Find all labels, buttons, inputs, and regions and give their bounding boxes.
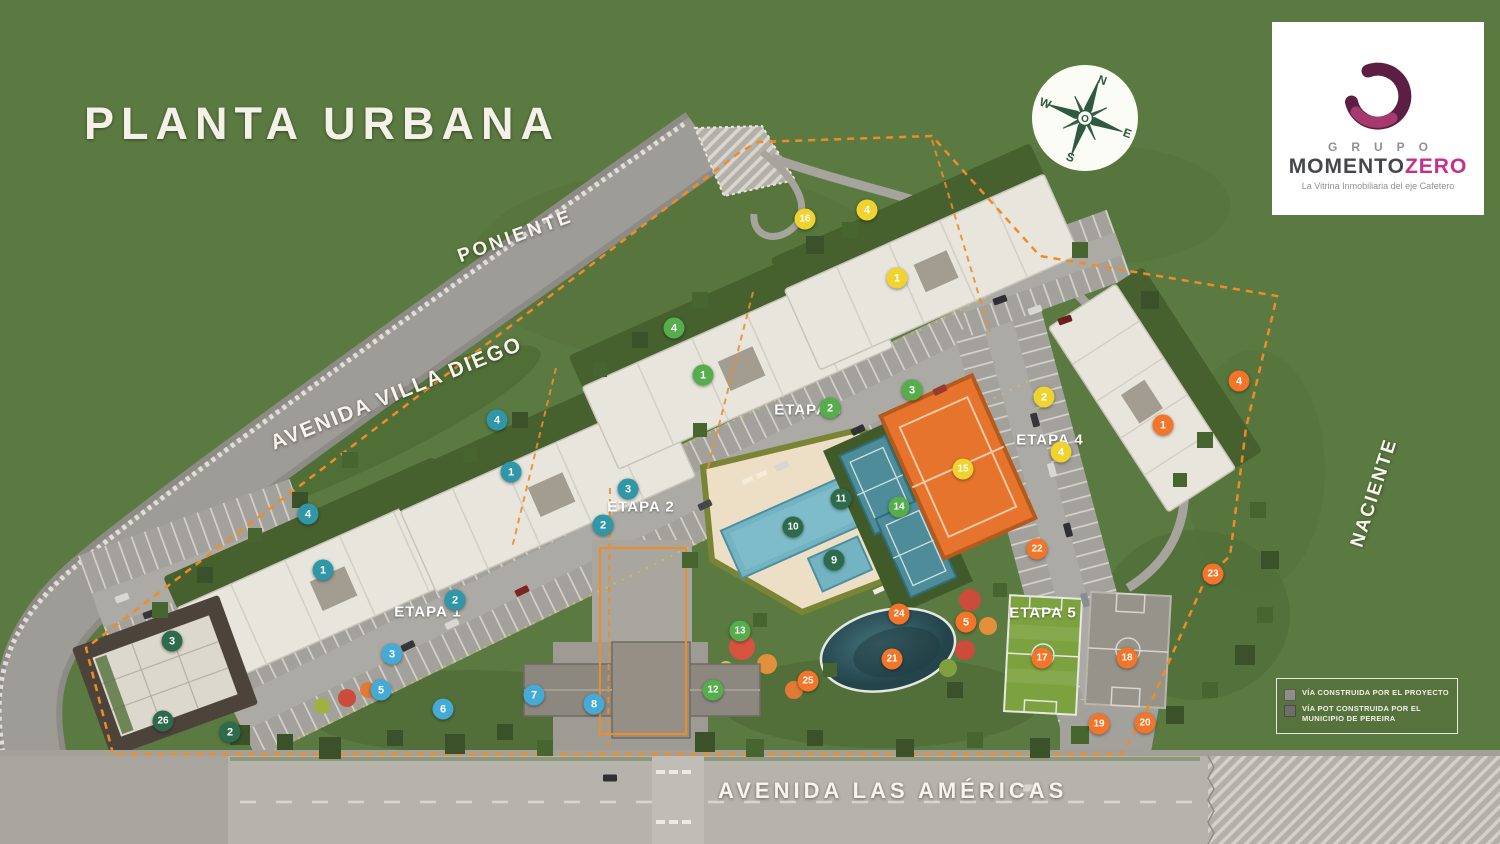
marker-8: 8 [584,694,605,715]
marker-12: 12 [703,680,724,701]
marker-2: 2 [593,515,614,536]
marker-2: 2 [445,590,466,611]
marker-4: 4 [664,318,685,339]
road-legend: VÍA CONSTRUIDA POR EL PROYECTOVÍA POT CO… [1276,678,1458,734]
marker-5: 5 [956,612,977,633]
legend-label: VÍA POT CONSTRUIDA POR EL MUNICIPIO DE P… [1302,704,1450,724]
marker-9: 9 [824,550,845,571]
marker-3: 3 [618,479,639,500]
marker-1: 1 [313,560,334,581]
marker-4: 4 [487,410,508,431]
marker-1: 1 [693,365,714,386]
marker-21: 21 [882,649,903,670]
etapa-label-4: ETAPA 4 [1016,432,1084,449]
legend-swatch [1284,705,1296,717]
etapa-label-5: ETAPA 5 [1009,605,1077,622]
legend-swatch [1284,689,1296,701]
street-label-americas: AVENIDA LAS AMÉRICAS [718,778,1067,804]
marker-2: 2 [1034,387,1055,408]
marker-1: 1 [1153,415,1174,436]
compass-center: O [1081,114,1089,125]
marker-19: 19 [1089,714,1110,735]
legend-label: VÍA CONSTRUIDA POR EL PROYECTO [1302,688,1449,698]
marker-14: 14 [889,497,910,518]
marker-5: 5 [371,680,392,701]
marker-7: 7 [524,685,545,706]
marker-13: 13 [730,621,751,642]
logo-zero: ZERO [1405,155,1467,178]
marker-23: 23 [1203,564,1224,585]
logo-brand-text: MOMENTOZERO [1272,155,1484,179]
page-title: PLANTA URBANA [84,98,560,150]
marker-3: 3 [902,380,923,401]
marker-3: 3 [162,631,183,652]
marker-4: 4 [298,504,319,525]
brand-logo-card: GRUPO MOMENTOZERO La Vitrina Inmobiliari… [1272,22,1484,215]
momento-zero-logo-icon [1342,60,1414,132]
marker-24: 24 [889,604,910,625]
marker-20: 20 [1135,713,1156,734]
marker-4: 4 [1051,442,1072,463]
marker-10: 10 [783,517,804,538]
marker-1: 1 [501,462,522,483]
etapa-label-2: ETAPA 2 [607,499,675,516]
marker-18: 18 [1117,648,1138,669]
marker-4: 4 [1229,371,1250,392]
legend-item-1: VÍA POT CONSTRUIDA POR EL MUNICIPIO DE P… [1284,704,1450,724]
marker-2: 2 [220,722,241,743]
marker-1: 1 [887,268,908,289]
logo-tagline: La Vitrina Inmobiliaria del eje Cafetero [1272,181,1484,191]
marker-11: 11 [831,489,852,510]
site-plan: PLANTA URBANA PONIENTE AVENIDA VILLA DIE… [0,0,1500,844]
logo-momento: MOMENTO [1289,155,1405,178]
legend-item-0: VÍA CONSTRUIDA POR EL PROYECTO [1284,688,1450,701]
logo-grupo-text: GRUPO [1272,140,1484,154]
marker-26: 26 [153,711,174,732]
marker-2: 2 [820,398,841,419]
marker-3: 3 [382,644,403,665]
marker-4: 4 [857,200,878,221]
compass-rose: N E S W O [1028,61,1142,175]
marker-16: 16 [795,209,816,230]
marker-15: 15 [953,459,974,480]
marker-17: 17 [1032,648,1053,669]
marker-6: 6 [433,699,454,720]
marker-22: 22 [1027,539,1048,560]
marker-25: 25 [798,671,819,692]
